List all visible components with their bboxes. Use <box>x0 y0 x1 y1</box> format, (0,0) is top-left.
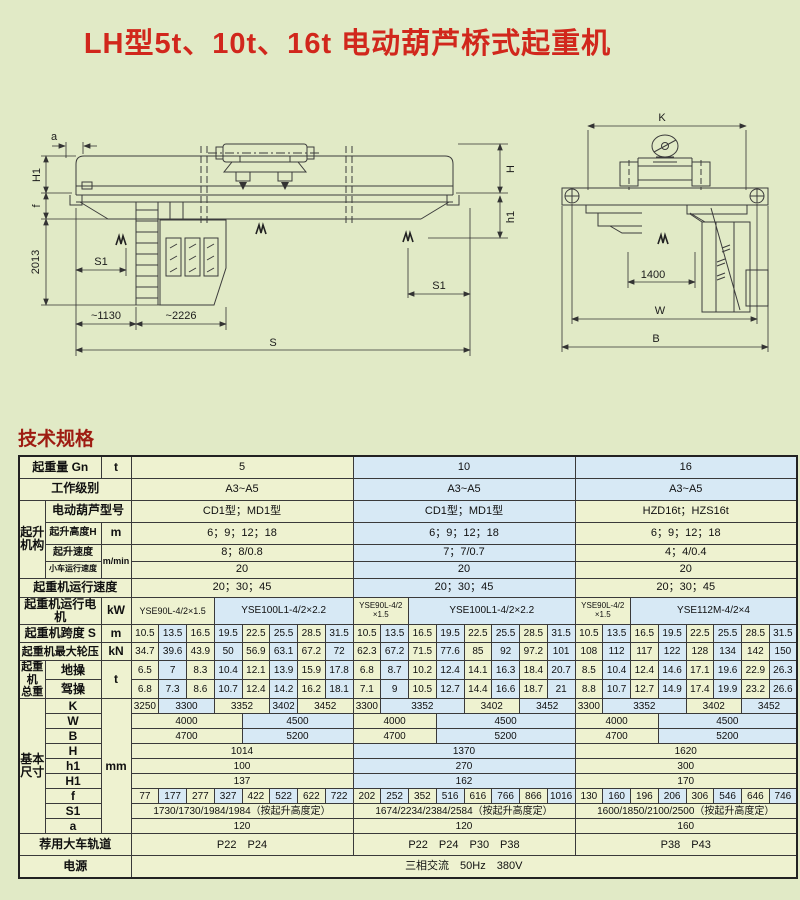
data-cell: 422 <box>242 789 270 804</box>
dim-f: f <box>31 204 43 208</box>
data-cell: 13.5 <box>381 625 409 643</box>
section-mark <box>658 235 668 244</box>
data-cell: 5200 <box>436 729 575 744</box>
data-cell: 16 <box>575 456 797 478</box>
data-cell: 15.9 <box>298 661 326 680</box>
dim-K: K <box>658 112 666 124</box>
data-cell: 14.6 <box>658 661 686 680</box>
data-cell: 8.8 <box>575 680 603 699</box>
data-cell: P38 P43 <box>575 834 797 856</box>
data-cell: 3300 <box>575 699 603 714</box>
section-mark <box>403 233 413 242</box>
data-cell: 112 <box>603 643 631 661</box>
row-label: K <box>45 699 101 714</box>
data-cell: 19.6 <box>714 661 742 680</box>
data-cell: 130 <box>575 789 603 804</box>
data-cell: 12.7 <box>436 680 464 699</box>
data-cell: 19.9 <box>714 680 742 699</box>
data-cell: 3352 <box>381 699 464 714</box>
data-cell: 4000 <box>575 714 658 729</box>
table-row: 起重 机 总重地操t6.578.310.412.113.915.917.86.8… <box>19 661 797 680</box>
data-cell: 4700 <box>575 729 658 744</box>
data-cell: 26.3 <box>769 661 797 680</box>
dim-H: H <box>505 165 517 173</box>
data-cell: 10.4 <box>214 661 242 680</box>
data-cell: 1016 <box>547 789 575 804</box>
data-cell: 1674/2234/2384/2584（按起升高度定） <box>353 804 575 819</box>
data-cell: 22.5 <box>464 625 492 643</box>
data-cell: 300 <box>575 759 797 774</box>
data-cell: 16.2 <box>298 680 326 699</box>
data-cell: 10.7 <box>214 680 242 699</box>
data-cell: 177 <box>159 789 187 804</box>
data-cell: 252 <box>381 789 409 804</box>
table-row: 基本 尺寸Kmm32503300335234023452330033523402… <box>19 699 797 714</box>
dim-h1: h1 <box>505 211 517 223</box>
dim-1400: 1400 <box>641 269 665 281</box>
data-cell: 4500 <box>242 714 353 729</box>
data-cell: HZD16t；HZS16t <box>575 500 797 522</box>
row-label: B <box>45 729 101 744</box>
row-label: 荐用大车轨道 <box>19 834 131 856</box>
data-cell: 21 <box>547 680 575 699</box>
spec-table: 起重量 Gnt51016工作级别A3~A5A3~A5A3~A5起升 机构电动葫芦… <box>18 455 798 879</box>
data-cell: 三相交流 50Hz 380V <box>131 856 797 878</box>
row-label: 基本 尺寸 <box>19 699 45 834</box>
data-cell: 16.5 <box>187 625 215 643</box>
table-row: 起升速度m/min8；8/0.87；7/0.74；4/0.4 <box>19 544 797 561</box>
data-cell: 12.1 <box>242 661 270 680</box>
data-cell: 13.5 <box>603 625 631 643</box>
table-row: a120120160 <box>19 819 797 834</box>
data-cell: 866 <box>520 789 548 804</box>
section-mark <box>116 236 126 245</box>
row-label: 起升高度H <box>45 522 101 544</box>
data-cell: 101 <box>547 643 575 661</box>
dim-H1: H1 <box>31 168 43 182</box>
dim-S: S <box>269 337 276 349</box>
data-cell: 7.1 <box>353 680 381 699</box>
data-cell: 3402 <box>464 699 520 714</box>
data-cell: 50 <box>214 643 242 661</box>
data-cell: A3~A5 <box>131 478 353 500</box>
data-cell: 306 <box>686 789 714 804</box>
data-cell: 100 <box>131 759 353 774</box>
data-cell: 10.5 <box>575 625 603 643</box>
row-label: H1 <box>45 774 101 789</box>
data-cell: 6；9；12；18 <box>353 522 575 544</box>
data-cell: 10.5 <box>353 625 381 643</box>
data-cell: 17.1 <box>686 661 714 680</box>
data-cell: YSE90L-4/2 ×1.5 <box>353 597 409 625</box>
data-cell: 10.7 <box>603 680 631 699</box>
data-cell: 4700 <box>353 729 436 744</box>
table-row: 起重机运行电机kWYSE90L-4/2×1.5YSE100L1-4/2×2.2Y… <box>19 597 797 625</box>
row-label: t <box>101 456 131 478</box>
data-cell: 97.2 <box>520 643 548 661</box>
data-cell: P22 P24 P30 P38 <box>353 834 575 856</box>
dim-a: a <box>51 131 58 143</box>
data-cell: 9 <box>381 680 409 699</box>
row-label: 工作级别 <box>19 478 131 500</box>
data-cell: 18.7 <box>520 680 548 699</box>
data-cell: 25.5 <box>714 625 742 643</box>
data-cell: 71.5 <box>409 643 437 661</box>
data-cell: 3402 <box>686 699 742 714</box>
data-cell: 120 <box>131 819 353 834</box>
data-cell: 31.5 <box>325 625 353 643</box>
data-cell: 766 <box>492 789 520 804</box>
data-cell: 4700 <box>131 729 242 744</box>
data-cell: 77 <box>131 789 159 804</box>
data-cell: 3352 <box>603 699 686 714</box>
data-cell: 160 <box>575 819 797 834</box>
row-label: 起升 机构 <box>19 500 45 578</box>
dim-S1-right: S1 <box>432 280 445 292</box>
data-cell: 128 <box>686 643 714 661</box>
data-cell: YSE90L-4/2 ×1.5 <box>575 597 631 625</box>
data-cell: 3300 <box>159 699 215 714</box>
data-cell: 62.3 <box>353 643 381 661</box>
data-cell: 150 <box>769 643 797 661</box>
end-view-drawing: K 1400 W B <box>550 100 800 380</box>
data-cell: 26.6 <box>769 680 797 699</box>
data-cell: 20 <box>353 561 575 578</box>
data-cell: P22 P24 <box>131 834 353 856</box>
data-cell: 23.2 <box>742 680 770 699</box>
data-cell: 134 <box>714 643 742 661</box>
data-cell: 67.2 <box>298 643 326 661</box>
table-row: 起重机跨度 Sm10.513.516.519.522.525.528.531.5… <box>19 625 797 643</box>
data-cell: 5 <box>131 456 353 478</box>
row-label: kW <box>101 597 131 625</box>
row-label: a <box>45 819 101 834</box>
row-label: 电动葫芦型号 <box>45 500 131 522</box>
data-cell: 206 <box>658 789 686 804</box>
row-label: S1 <box>45 804 101 819</box>
data-cell: 6.8 <box>353 661 381 680</box>
data-cell: 20；30；45 <box>575 578 797 597</box>
data-cell: 20.7 <box>547 661 575 680</box>
data-cell: 12.4 <box>436 661 464 680</box>
table-row: 荐用大车轨道P22 P24P22 P24 P30 P38P38 P43 <box>19 834 797 856</box>
data-cell: 3452 <box>742 699 798 714</box>
row-label: 起升速度 <box>45 544 101 561</box>
data-cell: YSE100L1-4/2×2.2 <box>409 597 576 625</box>
row-label: 起重机运行电机 <box>19 597 101 625</box>
row-label: t <box>101 661 131 699</box>
spec-table-body: 起重量 Gnt51016工作级别A3~A5A3~A5A3~A5起升 机构电动葫芦… <box>19 456 797 878</box>
page-title: LH型5t、10t、16t 电动葫芦桥式起重机 <box>0 20 695 62</box>
data-cell: 1014 <box>131 744 353 759</box>
data-cell: 8.3 <box>187 661 215 680</box>
data-cell: 16.5 <box>631 625 659 643</box>
table-row: 小车运行速度202020 <box>19 561 797 578</box>
data-cell: 1370 <box>353 744 575 759</box>
data-cell: 67.2 <box>381 643 409 661</box>
data-cell: 39.6 <box>159 643 187 661</box>
data-cell: 3452 <box>520 699 576 714</box>
table-row: 起升高度Hm6；9；12；186；9；12；186；9；12；18 <box>19 522 797 544</box>
data-cell: 4500 <box>658 714 797 729</box>
data-cell: 3300 <box>353 699 381 714</box>
data-cell: 8.7 <box>381 661 409 680</box>
data-cell: 196 <box>631 789 659 804</box>
data-cell: 13.9 <box>270 661 298 680</box>
data-cell: 10.5 <box>409 680 437 699</box>
table-row: H101413701620 <box>19 744 797 759</box>
data-cell: 18.4 <box>520 661 548 680</box>
data-cell: 20；30；45 <box>353 578 575 597</box>
table-row: 工作级别A3~A5A3~A5A3~A5 <box>19 478 797 500</box>
data-cell: 160 <box>603 789 631 804</box>
data-cell: 1620 <box>575 744 797 759</box>
data-cell: 20 <box>575 561 797 578</box>
data-cell: 4；4/0.4 <box>575 544 797 561</box>
data-cell: 20 <box>131 561 353 578</box>
data-cell: 7 <box>159 661 187 680</box>
row-label: 起重 机 总重 <box>19 661 45 699</box>
data-cell: 92 <box>492 643 520 661</box>
data-cell: 3402 <box>270 699 298 714</box>
data-cell: 8；8/0.8 <box>131 544 353 561</box>
data-cell: 22.9 <box>742 661 770 680</box>
row-label: 起重机最大轮压 <box>19 643 101 661</box>
data-cell: YSE112M-4/2×4 <box>631 597 798 625</box>
data-cell: 162 <box>353 774 575 789</box>
data-cell: 22.5 <box>686 625 714 643</box>
dim-2226: ~2226 <box>166 310 197 322</box>
data-cell: 3250 <box>131 699 159 714</box>
data-cell: 63.1 <box>270 643 298 661</box>
table-row: h1100270300 <box>19 759 797 774</box>
data-cell: 25.5 <box>492 625 520 643</box>
data-cell: YSE100L1-4/2×2.2 <box>214 597 353 625</box>
data-cell: A3~A5 <box>575 478 797 500</box>
data-cell: 19.5 <box>436 625 464 643</box>
data-cell: 14.4 <box>464 680 492 699</box>
data-cell: 1600/1850/2100/2500（按起升高度定） <box>575 804 797 819</box>
table-row: 起重机最大轮压kN34.739.643.95056.963.167.27262.… <box>19 643 797 661</box>
data-cell: 522 <box>270 789 298 804</box>
data-cell: 4000 <box>353 714 436 729</box>
row-label: W <box>45 714 101 729</box>
data-cell: 72 <box>325 643 353 661</box>
table-row: 起重机运行速度20；30；4520；30；4520；30；45 <box>19 578 797 597</box>
data-cell: A3~A5 <box>353 478 575 500</box>
data-cell: 277 <box>187 789 215 804</box>
side-view-drawing: a H1 f 2013 S1 ~1130 ~2226 S H h1 S1 <box>8 98 550 386</box>
data-cell: 646 <box>742 789 770 804</box>
data-cell: 1730/1730/1984/1984（按起升高度定） <box>131 804 353 819</box>
data-cell: 12.4 <box>631 661 659 680</box>
data-cell: 10.4 <box>603 661 631 680</box>
data-cell: 17.8 <box>325 661 353 680</box>
data-cell: 7；7/0.7 <box>353 544 575 561</box>
row-label: 小车运行速度 <box>45 561 101 578</box>
data-cell: 170 <box>575 774 797 789</box>
data-cell: 137 <box>131 774 353 789</box>
data-cell: 10 <box>353 456 575 478</box>
data-cell: 19.5 <box>658 625 686 643</box>
data-cell: 56.9 <box>242 643 270 661</box>
data-cell: 270 <box>353 759 575 774</box>
data-cell: 4500 <box>436 714 575 729</box>
row-label: 起重机运行速度 <box>19 578 131 597</box>
data-cell: 34.7 <box>131 643 159 661</box>
data-cell: 8.6 <box>187 680 215 699</box>
data-cell: 746 <box>769 789 797 804</box>
data-cell: 108 <box>575 643 603 661</box>
data-cell: 43.9 <box>187 643 215 661</box>
data-cell: 7.3 <box>159 680 187 699</box>
data-cell: YSE90L-4/2×1.5 <box>131 597 214 625</box>
table-row: B470052004700520047005200 <box>19 729 797 744</box>
data-cell: 546 <box>714 789 742 804</box>
row-label: m <box>101 522 131 544</box>
data-cell: 25.5 <box>270 625 298 643</box>
data-cell: 22.5 <box>242 625 270 643</box>
row-label: 驾操 <box>45 680 101 699</box>
row-label: 电源 <box>19 856 131 878</box>
data-cell: CD1型；MD1型 <box>131 500 353 522</box>
data-cell: 12.7 <box>631 680 659 699</box>
data-cell: 120 <box>353 819 575 834</box>
row-label: 地操 <box>45 661 101 680</box>
dim-B: B <box>652 333 659 345</box>
dim-S1-left: S1 <box>94 256 107 268</box>
data-cell: 6；9；12；18 <box>131 522 353 544</box>
row-label: h1 <box>45 759 101 774</box>
data-cell: 14.1 <box>464 661 492 680</box>
data-cell: 5200 <box>242 729 353 744</box>
data-cell: 722 <box>325 789 353 804</box>
row-label: kN <box>101 643 131 661</box>
data-cell: 12.4 <box>242 680 270 699</box>
data-cell: 19.5 <box>214 625 242 643</box>
data-cell: 31.5 <box>769 625 797 643</box>
data-cell: 28.5 <box>742 625 770 643</box>
data-cell: 516 <box>436 789 464 804</box>
data-cell: 6；9；12；18 <box>575 522 797 544</box>
data-cell: 77.6 <box>436 643 464 661</box>
data-cell: 622 <box>298 789 326 804</box>
data-cell: 142 <box>742 643 770 661</box>
table-row: W400045004000450040004500 <box>19 714 797 729</box>
data-cell: 28.5 <box>520 625 548 643</box>
data-cell: 14.2 <box>270 680 298 699</box>
row-label: H <box>45 744 101 759</box>
data-cell: 18.1 <box>325 680 353 699</box>
data-cell: 31.5 <box>547 625 575 643</box>
row-label: mm <box>101 699 131 834</box>
row-label: m <box>101 625 131 643</box>
table-row: f771772773274225226227222022523525166167… <box>19 789 797 804</box>
row-label: f <box>45 789 101 804</box>
table-row: 起升 机构电动葫芦型号CD1型；MD1型CD1型；MD1型HZD16t；HZS1… <box>19 500 797 522</box>
section-mark <box>256 225 266 234</box>
data-cell: 3452 <box>298 699 354 714</box>
table-row: 驾操6.87.38.610.712.414.216.218.17.1910.51… <box>19 680 797 699</box>
data-cell: 13.5 <box>159 625 187 643</box>
data-cell: CD1型；MD1型 <box>353 500 575 522</box>
data-cell: 17.4 <box>686 680 714 699</box>
data-cell: 14.9 <box>658 680 686 699</box>
data-cell: 5200 <box>658 729 797 744</box>
section-heading: 技术规格 <box>18 424 94 451</box>
data-cell: 616 <box>464 789 492 804</box>
data-cell: 20；30；45 <box>131 578 353 597</box>
data-cell: 4000 <box>131 714 242 729</box>
data-cell: 122 <box>658 643 686 661</box>
row-label: m/min <box>101 544 131 578</box>
data-cell: 202 <box>353 789 381 804</box>
row-label: 起重量 Gn <box>19 456 101 478</box>
data-cell: 6.5 <box>131 661 159 680</box>
data-cell: 327 <box>214 789 242 804</box>
dim-W: W <box>655 305 666 317</box>
data-cell: 85 <box>464 643 492 661</box>
table-row: 电源三相交流 50Hz 380V <box>19 856 797 878</box>
data-cell: 6.8 <box>131 680 159 699</box>
data-cell: 117 <box>631 643 659 661</box>
data-cell: 16.3 <box>492 661 520 680</box>
table-row: S11730/1730/1984/1984（按起升高度定）1674/2234/2… <box>19 804 797 819</box>
table-row: 起重量 Gnt51016 <box>19 456 797 478</box>
data-cell: 10.5 <box>131 625 159 643</box>
data-cell: 28.5 <box>298 625 326 643</box>
row-label: 起重机跨度 S <box>19 625 101 643</box>
data-cell: 16.6 <box>492 680 520 699</box>
dim-2013: 2013 <box>30 250 42 274</box>
data-cell: 352 <box>409 789 437 804</box>
table-row: H1137162170 <box>19 774 797 789</box>
data-cell: 16.5 <box>409 625 437 643</box>
data-cell: 10.2 <box>409 661 437 680</box>
dim-1130: ~1130 <box>91 310 121 322</box>
data-cell: 3352 <box>214 699 270 714</box>
data-cell: 8.5 <box>575 661 603 680</box>
